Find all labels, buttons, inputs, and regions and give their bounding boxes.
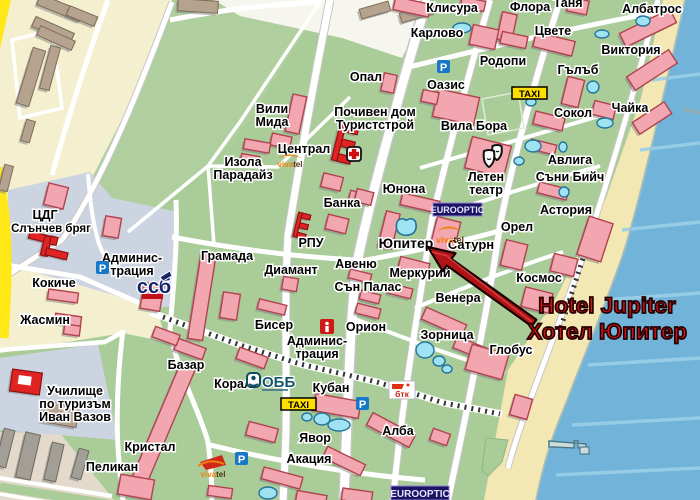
svg-text:Акация: Акация [287, 452, 332, 466]
svg-text:Админис-: Админис- [102, 251, 162, 265]
svg-text:Слънчев бряг: Слънчев бряг [11, 223, 91, 235]
svg-text:EUROOPTIC: EUROOPTIC [390, 489, 449, 500]
svg-text:Виктория: Виктория [601, 43, 660, 57]
svg-text:Гълъб: Гълъб [558, 63, 599, 77]
svg-text:РПУ: РПУ [298, 236, 323, 250]
svg-text:Юпитер: Юпитер [379, 235, 434, 251]
svg-text:Жасмин: Жасмин [19, 313, 70, 327]
svg-text:Флора: Флора [510, 0, 551, 14]
svg-text:Кристал: Кристал [125, 440, 176, 454]
svg-text:Централ: Централ [278, 142, 330, 156]
svg-text:Венера: Венера [435, 291, 481, 305]
svg-text:Явор: Явор [299, 431, 331, 445]
svg-text:Сокол: Сокол [554, 106, 592, 120]
svg-text:Кокиче: Кокиче [32, 276, 75, 290]
svg-text:Авлига: Авлига [548, 153, 593, 167]
svg-text:Пеликан: Пеликан [86, 460, 138, 474]
svg-text:Зорница: Зорница [420, 328, 474, 342]
svg-text:Грамада: Грамада [201, 249, 254, 263]
svg-text:Алба: Алба [382, 424, 415, 438]
svg-text:Карлово: Карлово [411, 26, 464, 40]
svg-text:Орион: Орион [346, 320, 386, 334]
svg-text:бтк: бтк [395, 389, 409, 399]
svg-text:Изола: Изола [224, 155, 262, 169]
svg-text:Туристстрой: Туристстрой [336, 118, 414, 132]
svg-text:Почивен дом: Почивен дом [334, 105, 415, 119]
svg-text:Иван Вазов: Иван Вазов [39, 410, 111, 424]
svg-text:Глобус: Глобус [489, 343, 532, 357]
svg-text:Вила Бора: Вила Бора [441, 119, 508, 133]
svg-text:ОББ: ОББ [262, 374, 295, 391]
svg-text:трация: трация [295, 347, 338, 361]
svg-text:Банка: Банка [324, 196, 362, 210]
svg-text:Сън Палас: Сън Палас [335, 280, 402, 294]
svg-text:Кубан: Кубан [313, 381, 350, 395]
svg-text:Астория: Астория [540, 203, 592, 217]
svg-text:Авеню: Авеню [335, 257, 377, 271]
svg-text:Базар: Базар [168, 358, 205, 372]
svg-text:P: P [99, 263, 106, 275]
svg-text:Опал: Опал [350, 70, 382, 84]
svg-text:по туризъм: по туризъм [39, 397, 110, 411]
svg-text:театр: театр [469, 183, 503, 197]
svg-text:ЦДГ: ЦДГ [32, 208, 57, 222]
svg-text:P: P [359, 399, 366, 411]
svg-text:Бисер: Бисер [255, 318, 294, 332]
svg-text:EUROOPTIC: EUROOPTIC [431, 205, 485, 215]
svg-text:Hotel Jupiter: Hotel Jupiter [538, 293, 676, 318]
svg-text:P: P [440, 62, 447, 74]
svg-text:Диамант: Диамант [264, 263, 317, 277]
svg-text:Юнона: Юнона [383, 182, 427, 196]
svg-text:Албатрос: Албатрос [622, 2, 682, 16]
svg-text:Съни Бийч: Съни Бийч [536, 170, 604, 184]
svg-text:Мида: Мида [256, 115, 290, 129]
svg-text:Летен: Летен [468, 170, 504, 184]
svg-text:Клисура: Клисура [426, 1, 479, 15]
svg-text:TAXI: TAXI [288, 400, 309, 411]
svg-text:Парадайз: Парадайз [213, 168, 272, 182]
svg-text:vivatel: vivatel [436, 235, 464, 245]
svg-text:Таня: Таня [553, 0, 582, 10]
svg-text:Хотел Юпитер: Хотел Юпитер [527, 319, 687, 344]
svg-text:Космос: Космос [516, 271, 562, 285]
svg-text:Вили: Вили [256, 102, 288, 116]
svg-text:TAXI: TAXI [519, 89, 540, 100]
svg-text:Цвете: Цвете [535, 24, 572, 38]
svg-text:Админис-: Админис- [287, 334, 347, 348]
svg-text:Орел: Орел [501, 220, 533, 234]
svg-text:Оазис: Оазис [427, 78, 465, 92]
svg-text:vivatel: vivatel [278, 160, 303, 169]
svg-text:vivatel: vivatel [201, 470, 226, 479]
svg-text:P: P [238, 454, 245, 466]
svg-text:Родопи: Родопи [480, 54, 526, 68]
svg-text:Училище: Училище [47, 384, 103, 398]
svg-text:Чайка: Чайка [612, 101, 650, 115]
